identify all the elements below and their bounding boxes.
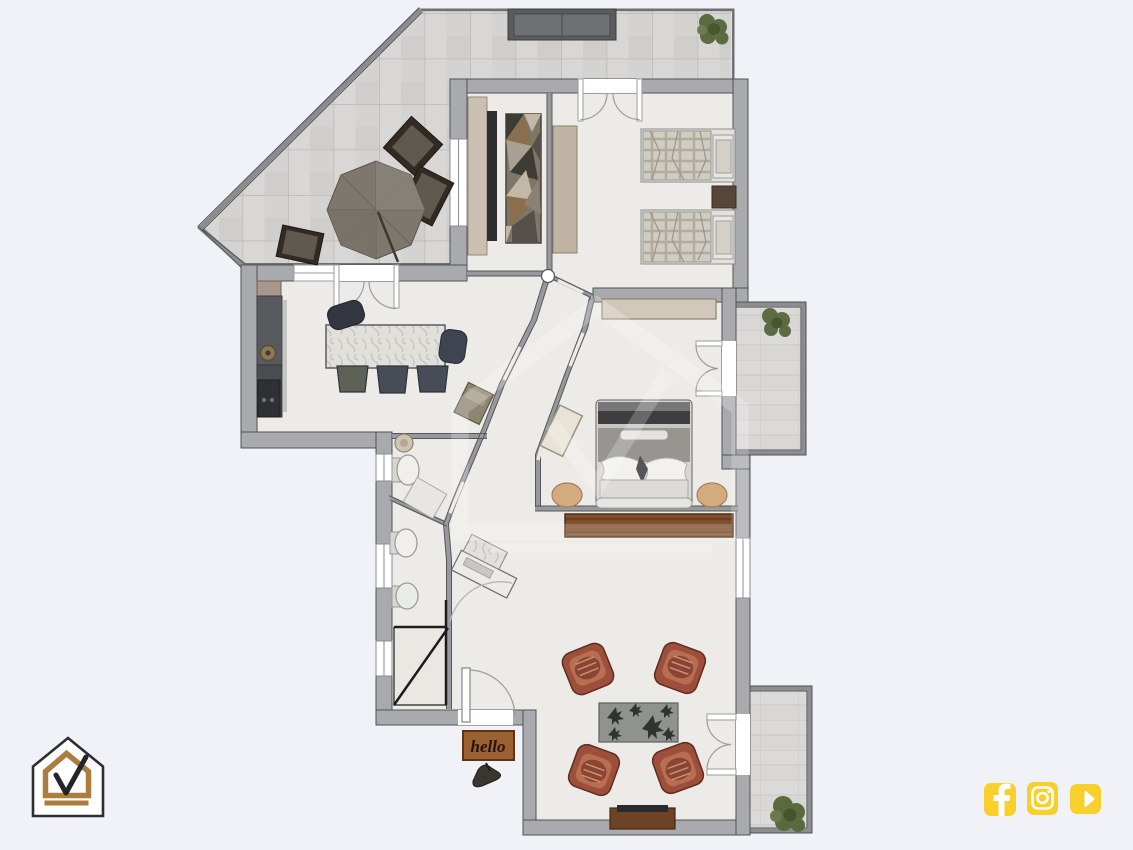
svg-text:hello: hello — [471, 737, 506, 756]
